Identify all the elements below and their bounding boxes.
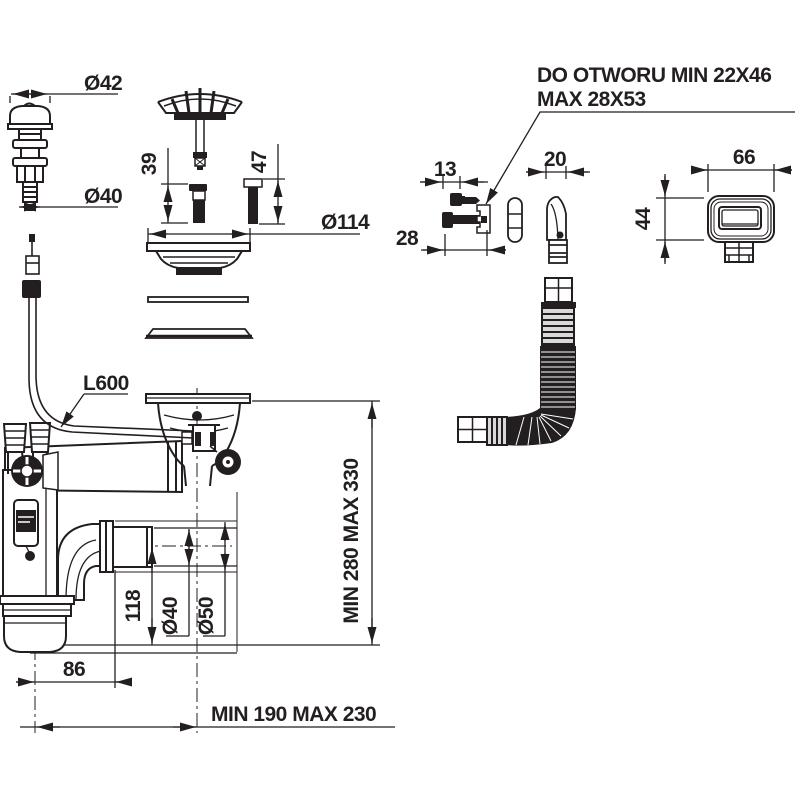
screw-short-part: [450, 193, 480, 206]
dim-label-plug-bottom: Ø40: [84, 185, 122, 208]
dim-label-cover-width: 66: [733, 146, 755, 169]
dim-label-flange: Ø114: [321, 211, 370, 234]
dim-label-cup-depth: 118: [122, 589, 145, 622]
dim-label-cup-offset: 86: [63, 658, 85, 681]
overflow-cover-part: [708, 196, 774, 262]
pin-long-part: [244, 179, 262, 224]
flat-gasket-part: [148, 297, 248, 302]
dim-label-cable: L600: [83, 372, 129, 395]
dim-screw-head: 13: [420, 158, 488, 189]
dim-cable-length: L600: [61, 372, 129, 427]
note-line2: MAX 28X53: [537, 88, 646, 111]
pin-short-part: [189, 184, 207, 223]
dim-label-screw-length: 28: [396, 227, 419, 250]
overflow-spout-part: [547, 197, 567, 263]
dim-cover-width: 66: [692, 146, 792, 192]
cutout-note: DO OTWORU MIN 22X46 MAX 28X53: [486, 64, 795, 204]
mounting-bracket: [43, 452, 58, 490]
oval-gasket-part: [508, 198, 522, 242]
dim-label-plug-top: Ø42: [84, 72, 122, 95]
strainer-basket-part: [158, 88, 242, 170]
dim-spout-width: 20: [526, 148, 590, 179]
overflow-hose-part: [458, 278, 576, 446]
dim-label-pin-long: 47: [248, 151, 271, 173]
dim-pin-short: 39: [138, 148, 188, 223]
dim-flange-diameter: Ø114: [148, 211, 370, 243]
dim-label-outlet-nut: Ø50: [195, 597, 218, 635]
dim-label-cover-height: 44: [632, 207, 655, 230]
dim-width-range: MIN 190 MAX 230: [20, 703, 395, 727]
technical-drawing-sink-siphon: Ø42 Ø40 39: [0, 0, 800, 800]
siphon-assembly: [0, 423, 182, 652]
dim-cover-height: 44: [632, 174, 704, 264]
dim-height-range: MIN 280 MAX 330: [340, 401, 372, 645]
mounting-clip-part: [477, 205, 490, 233]
dim-label-spout: 20: [544, 148, 566, 171]
dim-label-height-range: MIN 280 MAX 330: [340, 458, 363, 623]
drawing-canvas: Ø42 Ø40 39: [0, 0, 800, 800]
dim-label-width-range: MIN 190 MAX 230: [211, 703, 376, 726]
dim-label-outlet-pipe: Ø40: [159, 597, 182, 635]
note-line1: DO OTWORU MIN 22X46: [537, 64, 771, 87]
bevel-gasket-part: [146, 329, 252, 338]
popup-plug-part: [8, 104, 52, 211]
dim-plug-top-diameter: Ø42: [10, 72, 122, 103]
dim-label-pin-short: 39: [138, 153, 161, 175]
dim-label-screw-head: 13: [434, 158, 456, 181]
siphon-cup: [4, 616, 66, 652]
cup-rim: [0, 596, 74, 604]
drain-flange-part: [147, 243, 250, 275]
